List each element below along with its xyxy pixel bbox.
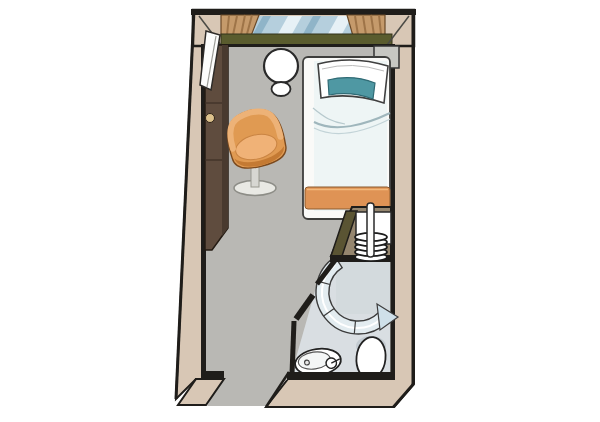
basin-drain	[304, 360, 309, 365]
bathroom-bottom-wall	[287, 372, 395, 380]
floor-plan	[0, 0, 600, 422]
window	[199, 15, 409, 45]
basin-faucet	[325, 357, 337, 369]
wardrobe-side	[222, 45, 228, 236]
round-table	[264, 49, 298, 83]
window-interior-wall	[201, 44, 393, 47]
shower-floor	[336, 262, 390, 314]
single-bed	[303, 57, 390, 219]
windowsill	[221, 34, 392, 45]
stool	[272, 82, 291, 96]
rack-rod	[367, 203, 374, 257]
bathroom-lower-wall	[292, 321, 294, 374]
floor-plan-canvas	[0, 0, 600, 422]
top-outer-edge	[191, 9, 416, 15]
wardrobe-knob	[206, 114, 215, 123]
wall-stub	[203, 371, 224, 380]
